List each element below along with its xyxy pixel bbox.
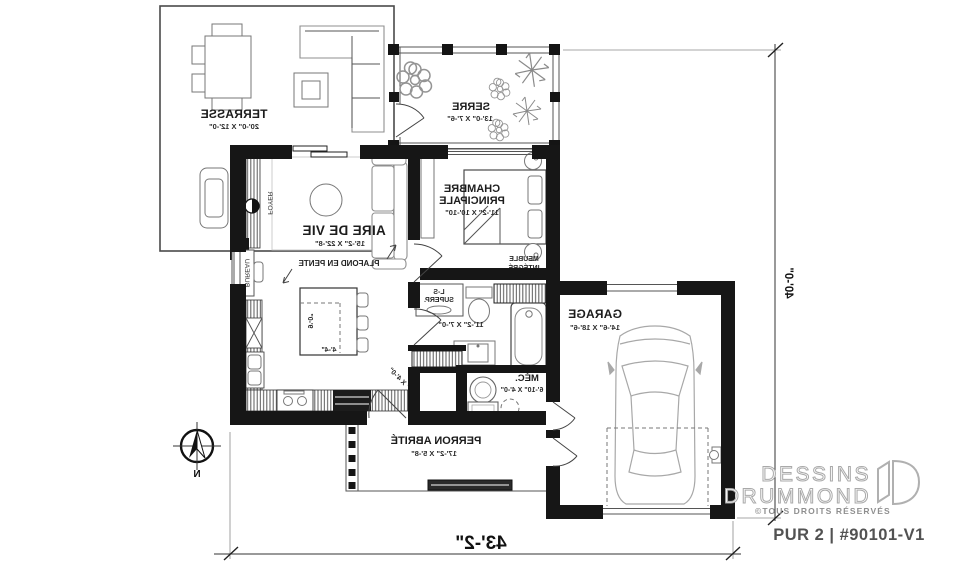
terrasse-dims: 20'-0" X 12'-0": [209, 122, 259, 131]
chambre-label2: PRINCIPALE: [439, 195, 505, 207]
bed: [464, 170, 546, 244]
toilet: [466, 287, 492, 323]
chambre-label: CHAMBRE: [444, 183, 500, 195]
mech-garage-door: [553, 402, 575, 430]
bureau-label: BUREAU: [243, 259, 250, 287]
garage-area: GARAGE 14'-6" X 18'-6": [568, 307, 721, 506]
electrical-panel: [710, 447, 722, 463]
kitchen-area: 9'-0" 4'-4": [246, 288, 408, 411]
car: [608, 326, 702, 504]
garage-dims: 14'-6" X 18'-6": [570, 323, 620, 332]
svg-text:L-S: L-S: [433, 289, 445, 296]
mech-dims: 6'-10" X 4'-0": [501, 387, 544, 394]
overall-width: 43'-2": [455, 533, 507, 554]
garage-label: GARAGE: [568, 307, 622, 321]
serre-label: SERRE: [452, 101, 490, 113]
corner-cabinet: [246, 318, 262, 348]
island-depth: 9'-0": [306, 313, 313, 328]
branding: DESSINS DRUMMOND ©TOUS DROITS RÉSERVÉS P…: [724, 461, 925, 544]
terrasse-label: TERRASSE: [201, 107, 268, 121]
brand-line2: DRUMMOND: [724, 485, 871, 508]
mech-label: MÉC.: [515, 373, 539, 384]
porch-area: PERRON ABRITÉ 17'-2" X 5'-8": [346, 423, 546, 491]
south-counter: [246, 390, 408, 411]
water-heater: [470, 377, 496, 403]
bathtub: [511, 303, 546, 370]
aire-dims: 15'-2" X 22'-8": [315, 239, 365, 248]
chambre-dims: 11'-2" X 10'-10": [445, 208, 499, 217]
porch-step: [428, 480, 512, 490]
stacked-laundry: L-S SUPERP.: [416, 284, 463, 316]
bathroom-area: L-S SUPERP. 11'-2" X 7'-0": [412, 284, 546, 370]
north-letter: N: [193, 469, 200, 480]
brand-line1: DESSINS: [761, 463, 871, 486]
serre-dims: 13'-0" X 7'-6": [447, 114, 493, 123]
lounge-chair: [200, 168, 228, 228]
bath-dims: 11'-2" X 7'-0": [438, 320, 484, 329]
foyer-label: FOYER: [266, 191, 273, 215]
porch-garage-door: [553, 438, 577, 466]
svg-text:PLAFOND EN PENTE: PLAFOND EN PENTE: [298, 259, 380, 268]
rights-text: ©TOUS DROITS RÉSERVÉS: [755, 506, 891, 516]
built-in-unit: [494, 284, 546, 303]
stove: [277, 390, 313, 411]
island: 9'-0" 4'-4": [300, 288, 368, 355]
porch-label: PERRON ABRITÉ: [391, 434, 482, 447]
overall-height: 40'-0": [782, 267, 794, 298]
builtin-label1: MEUBLE: [509, 256, 539, 263]
floor-plan-page: TERRASSE 20'-0" X 12'-0" SERRE 13'-0" X …: [0, 0, 960, 569]
garage-door: [603, 509, 710, 515]
garage-window: [607, 285, 677, 292]
serre-door: [396, 104, 424, 137]
aire-label: AIRE DE VIE: [302, 223, 386, 238]
round-ottoman: [310, 184, 342, 216]
terrasse-area: TERRASSE 20'-0" X 12'-0": [160, 6, 394, 251]
svg-text:SUPERP.: SUPERP.: [424, 297, 454, 304]
serre-area: SERRE 13'-0" X 7'-6": [388, 44, 560, 151]
north-arrow: N: [173, 422, 221, 480]
garage-door-swing: [607, 428, 708, 506]
porch-dims: 17'-2" X 5'-8": [411, 449, 457, 458]
coffee-table: [294, 73, 328, 107]
model-number: PUR 2 | #90101-V1: [773, 526, 925, 544]
kitchen-sink: [246, 352, 264, 388]
floor-plan-drawing: TERRASSE 20'-0" X 12'-0" SERRE 13'-0" X …: [0, 0, 960, 569]
linen-closet: [412, 351, 462, 367]
dishwasher: [333, 390, 371, 411]
island-width: 4'-4": [321, 347, 336, 354]
serre-plants: [397, 53, 549, 141]
brand-logo-icon: [878, 461, 919, 504]
dresser: [421, 158, 434, 238]
